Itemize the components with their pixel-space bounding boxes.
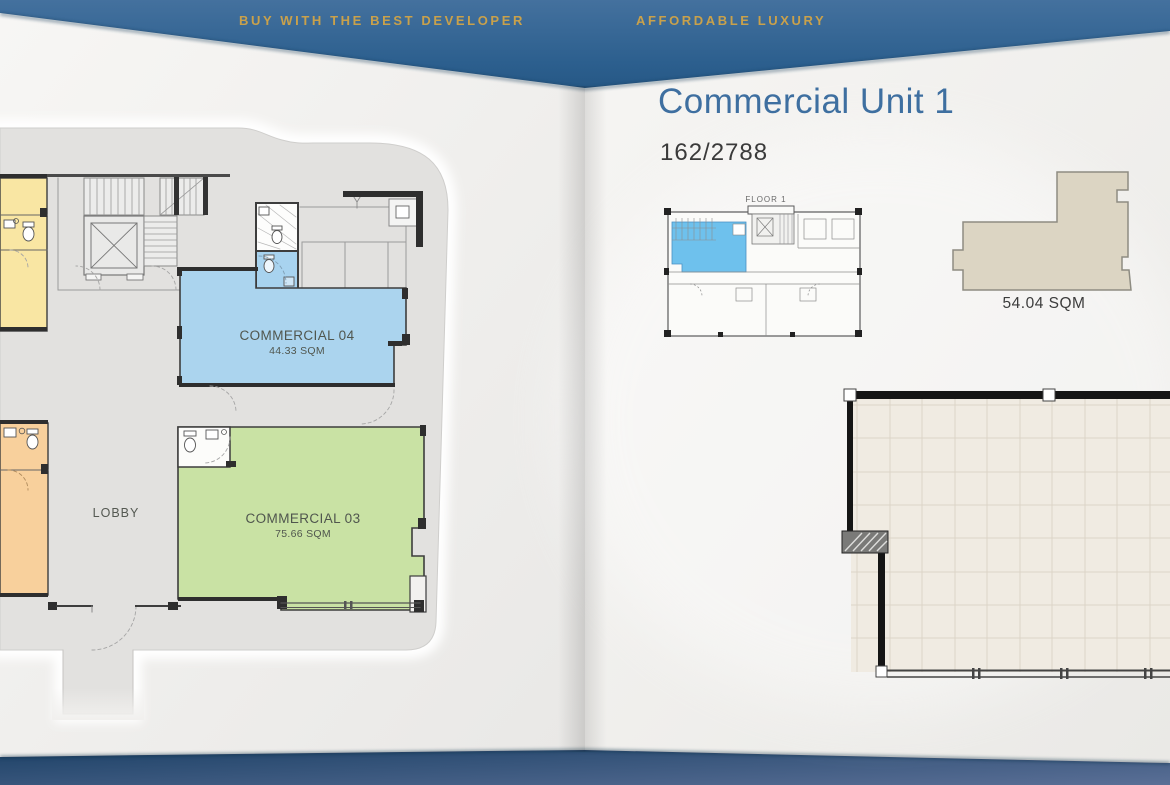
toilet-icon <box>27 435 38 449</box>
commercial04-area: 44.33 SQM <box>197 345 397 358</box>
tiled-bath <box>256 203 298 251</box>
utility-box <box>389 199 417 226</box>
column-marker <box>844 389 856 401</box>
key-plan-floor-label: FLOOR 1 <box>718 195 814 204</box>
sink-icon <box>4 428 16 437</box>
unit-number: 162/2788 <box>660 139 768 167</box>
page-artwork <box>0 0 1170 785</box>
left-floor-plan <box>0 128 448 720</box>
spine-shadow-left <box>558 86 585 752</box>
page-title: Commercial Unit 1 <box>658 82 954 122</box>
brochure-spread: BUY WITH THE BEST DEVELOPER AFFORDABLE L… <box>0 0 1170 785</box>
blue-bath <box>256 251 298 290</box>
commercial03-area: 75.66 SQM <box>203 528 403 541</box>
tagline-right: AFFORDABLE LUXURY <box>636 13 826 28</box>
toilet-icon <box>185 438 196 452</box>
sink-icon <box>206 430 218 439</box>
tagline-left: BUY WITH THE BEST DEVELOPER <box>237 13 527 28</box>
toilet-icon <box>264 260 274 273</box>
key-plan-core <box>752 214 794 244</box>
commercial03-label: COMMERCIAL 03 75.66 SQM <box>203 511 403 541</box>
elevator-icon <box>84 216 144 280</box>
room-yellow <box>0 174 47 331</box>
lobby-label: LOBBY <box>76 506 156 522</box>
unit-area-label: 54.04 SQM <box>969 295 1119 313</box>
spine-shadow-right <box>585 86 607 752</box>
commercial04-label: COMMERCIAL 04 44.33 SQM <box>197 328 397 358</box>
wall-left <box>847 399 853 531</box>
toilet-icon <box>272 231 282 244</box>
commercial04-name: COMMERCIAL 04 <box>197 328 397 345</box>
column-marker <box>1043 389 1055 401</box>
unit-floor-plan-detail <box>842 389 1170 679</box>
toilet-icon <box>23 222 34 241</box>
plan-ground <box>0 128 448 714</box>
wall-left-lower <box>878 553 885 673</box>
comm03-bath <box>178 427 236 467</box>
room-orange <box>0 420 48 597</box>
hatched-column <box>842 531 888 553</box>
key-plan <box>664 206 862 337</box>
commercial03-name: COMMERCIAL 03 <box>203 511 403 528</box>
sink-icon <box>259 207 269 215</box>
wall-top <box>847 391 1170 399</box>
